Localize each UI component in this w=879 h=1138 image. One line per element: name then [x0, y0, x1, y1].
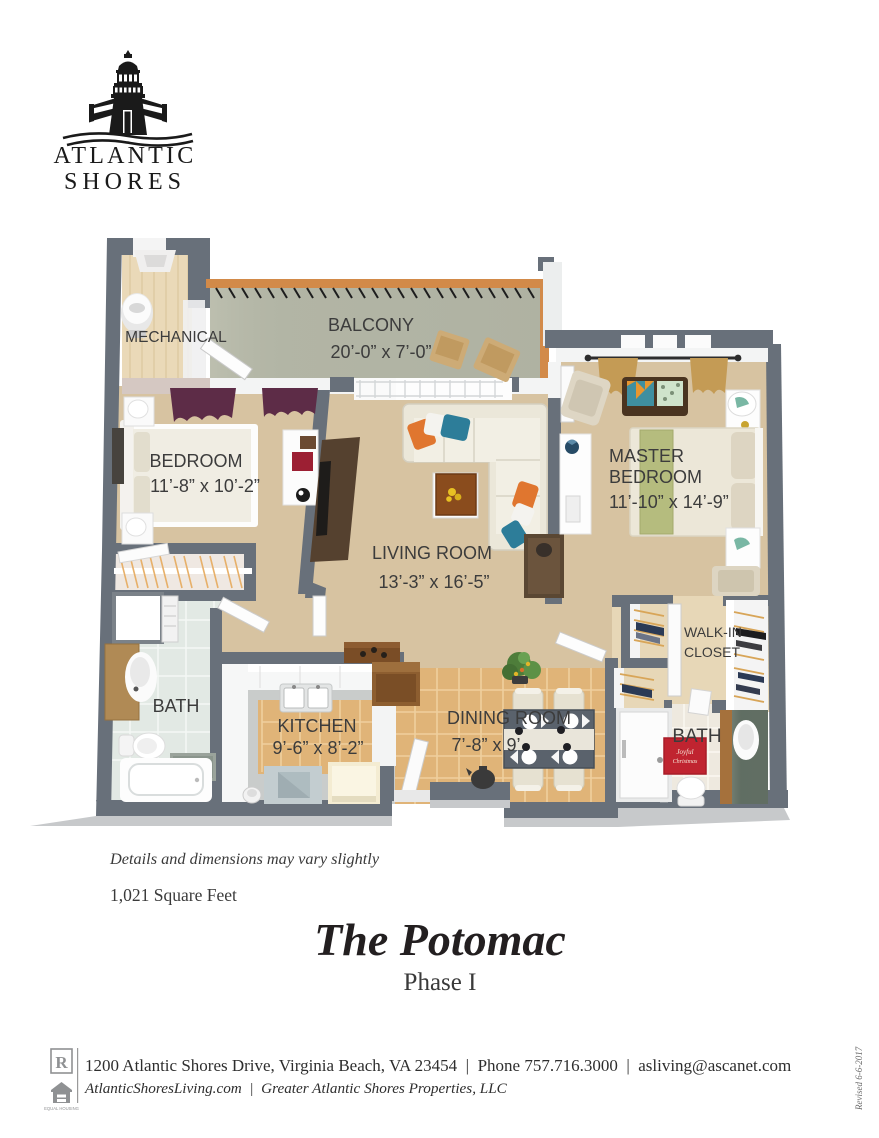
svg-text:SHORES: SHORES	[64, 169, 186, 195]
svg-text:BEDROOM: BEDROOM	[149, 451, 242, 471]
svg-text:KITCHEN: KITCHEN	[277, 716, 356, 736]
svg-text:CLOSET: CLOSET	[684, 644, 740, 660]
svg-text:MASTER: MASTER	[609, 446, 684, 466]
svg-text:BATH: BATH	[672, 726, 721, 747]
svg-text:R: R	[55, 1053, 68, 1072]
svg-text:BALCONY: BALCONY	[328, 315, 414, 335]
svg-text:Details and dimensions may var: Details and dimensions may vary slightly	[109, 849, 380, 868]
svg-text:LIVING ROOM: LIVING ROOM	[372, 543, 492, 563]
svg-text:7’-8” x 9’: 7’-8” x 9’	[451, 735, 520, 755]
svg-text:ATLANTIC: ATLANTIC	[54, 143, 197, 169]
svg-text:BEDROOM: BEDROOM	[609, 467, 702, 487]
svg-text:11’-10” x 14’-9”: 11’-10” x 14’-9”	[609, 492, 729, 512]
svg-text:MECHANICAL: MECHANICAL	[125, 329, 227, 346]
svg-text:13’-3” x 16’-5”: 13’-3” x 16’-5”	[378, 572, 489, 592]
svg-text:9’-6” x 8’-2”: 9’-6” x 8’-2”	[272, 738, 363, 758]
svg-text:1200 Atlantic Shores Drive, Vi: 1200 Atlantic Shores Drive, Virginia Bea…	[85, 1056, 791, 1075]
svg-text:Revised 6-6-2017: Revised 6-6-2017	[854, 1046, 864, 1111]
svg-text:The Potomac: The Potomac	[314, 914, 566, 965]
svg-text:EQUAL HOUSING: EQUAL HOUSING	[44, 1106, 79, 1111]
svg-text:Phase I: Phase I	[404, 969, 477, 996]
svg-text:Joyful: Joyful	[676, 748, 693, 756]
svg-text:1,021 Square Feet: 1,021 Square Feet	[110, 885, 237, 905]
svg-text:WALK-IN: WALK-IN	[684, 624, 742, 640]
svg-text:DINING ROOM: DINING ROOM	[447, 708, 571, 728]
svg-text:Christmas: Christmas	[673, 759, 698, 765]
svg-text:BATH: BATH	[153, 696, 200, 716]
svg-text:11’-8” x 10’-2”: 11’-8” x 10’-2”	[150, 476, 260, 496]
svg-text:20’-0” x 7’-0”: 20’-0” x 7’-0”	[330, 342, 431, 362]
svg-text:AtlanticShoresLiving.com | G: AtlanticShoresLiving.com | Greater Atlan…	[84, 1080, 508, 1097]
